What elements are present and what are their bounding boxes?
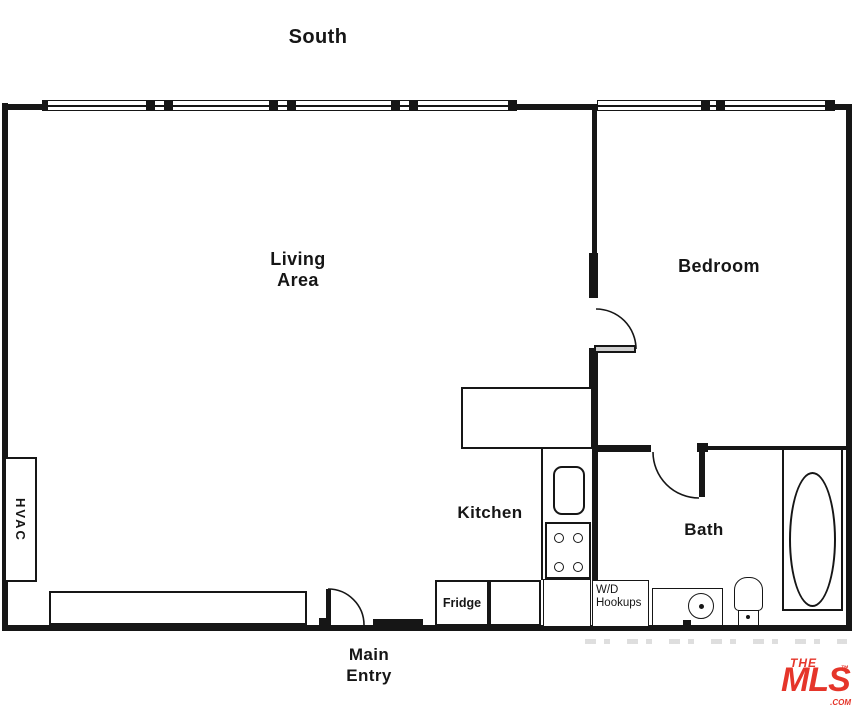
stove-burner: [573, 533, 583, 543]
stove-burner: [573, 562, 583, 572]
living-area-label-line1: Living: [270, 249, 325, 270]
window-band-living: [42, 100, 517, 111]
main-entry-label: Main Entry: [346, 644, 391, 686]
kitchen-counter-box-2: [489, 580, 541, 626]
window-mullion: [269, 100, 278, 111]
window-mullion: [287, 100, 296, 111]
fridge-box: Fridge: [435, 580, 489, 626]
stove: [545, 522, 591, 579]
hvac-unit-box: HVAC: [4, 457, 37, 582]
bath-door-arc: [653, 452, 699, 498]
kitchen-counter-box: [543, 579, 591, 627]
window-mullion: [701, 100, 710, 111]
main-entry-label-line1: Main: [346, 644, 391, 665]
window-mullion: [391, 100, 400, 111]
window-jamb: [42, 100, 48, 111]
entry-door-hinge-block: [319, 618, 331, 626]
mls-logo: THE MLS ™ .COM: [781, 656, 845, 708]
window-mullion: [146, 100, 155, 111]
bedroom-door-arc: [596, 309, 636, 349]
bath-label: Bath: [684, 520, 723, 540]
wall-east: [846, 104, 852, 631]
kitchen-sink: [553, 466, 585, 515]
window-jamb: [508, 100, 517, 111]
window-mullion: [164, 100, 173, 111]
wd-label-line2: Hookups: [596, 597, 648, 610]
window-mullion: [716, 100, 725, 111]
main-entry-label-line2: Entry: [346, 665, 391, 686]
kitchen-pantry-bumpout: [461, 387, 593, 449]
entry-closet-box: [49, 591, 307, 625]
bathtub-basin: [789, 472, 836, 607]
watermark-text-illegible: [585, 639, 847, 644]
washer-dryer-hookups-box: W/D Hookups: [592, 580, 649, 627]
toilet-bowl: [734, 577, 763, 611]
window-jamb: [825, 100, 835, 111]
floor-plan: South Fridge W/D Hookups: [0, 0, 859, 720]
wall-north-left: [2, 104, 42, 110]
wall-south: [2, 625, 852, 631]
stove-burner: [554, 533, 564, 543]
kitchen-counter-edge: [541, 449, 543, 580]
wall-north-middle: [517, 104, 597, 110]
stove-burner: [554, 562, 564, 572]
living-area-label-line2: Area: [270, 270, 325, 291]
vanity-plumbing-mark: [683, 620, 691, 625]
fridge-label: Fridge: [443, 596, 481, 610]
hvac-label: HVAC: [13, 498, 28, 542]
bedroom-label: Bedroom: [678, 256, 760, 277]
bedroom-door-leaf: [594, 345, 636, 353]
mls-logo-trademark: ™: [841, 664, 849, 673]
entry-threshold: [373, 619, 423, 628]
mls-logo-com: .COM: [830, 698, 851, 707]
window-glass-line: [43, 105, 516, 107]
wd-label-line1: W/D: [596, 584, 648, 597]
entry-door-arc: [328, 589, 364, 625]
kitchen-label: Kitchen: [457, 503, 522, 523]
partition-door-jamb-thick: [589, 253, 598, 298]
bath-door-leaf: [699, 451, 705, 497]
mls-logo-mls: MLS: [781, 663, 850, 697]
living-area-label: Living Area: [270, 249, 325, 291]
partition-door-hinge-post: [589, 348, 598, 387]
compass-label-south: South: [289, 26, 348, 49]
toilet-flush-mark: [746, 615, 750, 619]
window-mullion: [409, 100, 418, 111]
partition-living-bedroom-upper: [592, 110, 597, 253]
wall-bath-north-left: [597, 445, 651, 452]
vanity-sink-drain: [699, 604, 704, 609]
